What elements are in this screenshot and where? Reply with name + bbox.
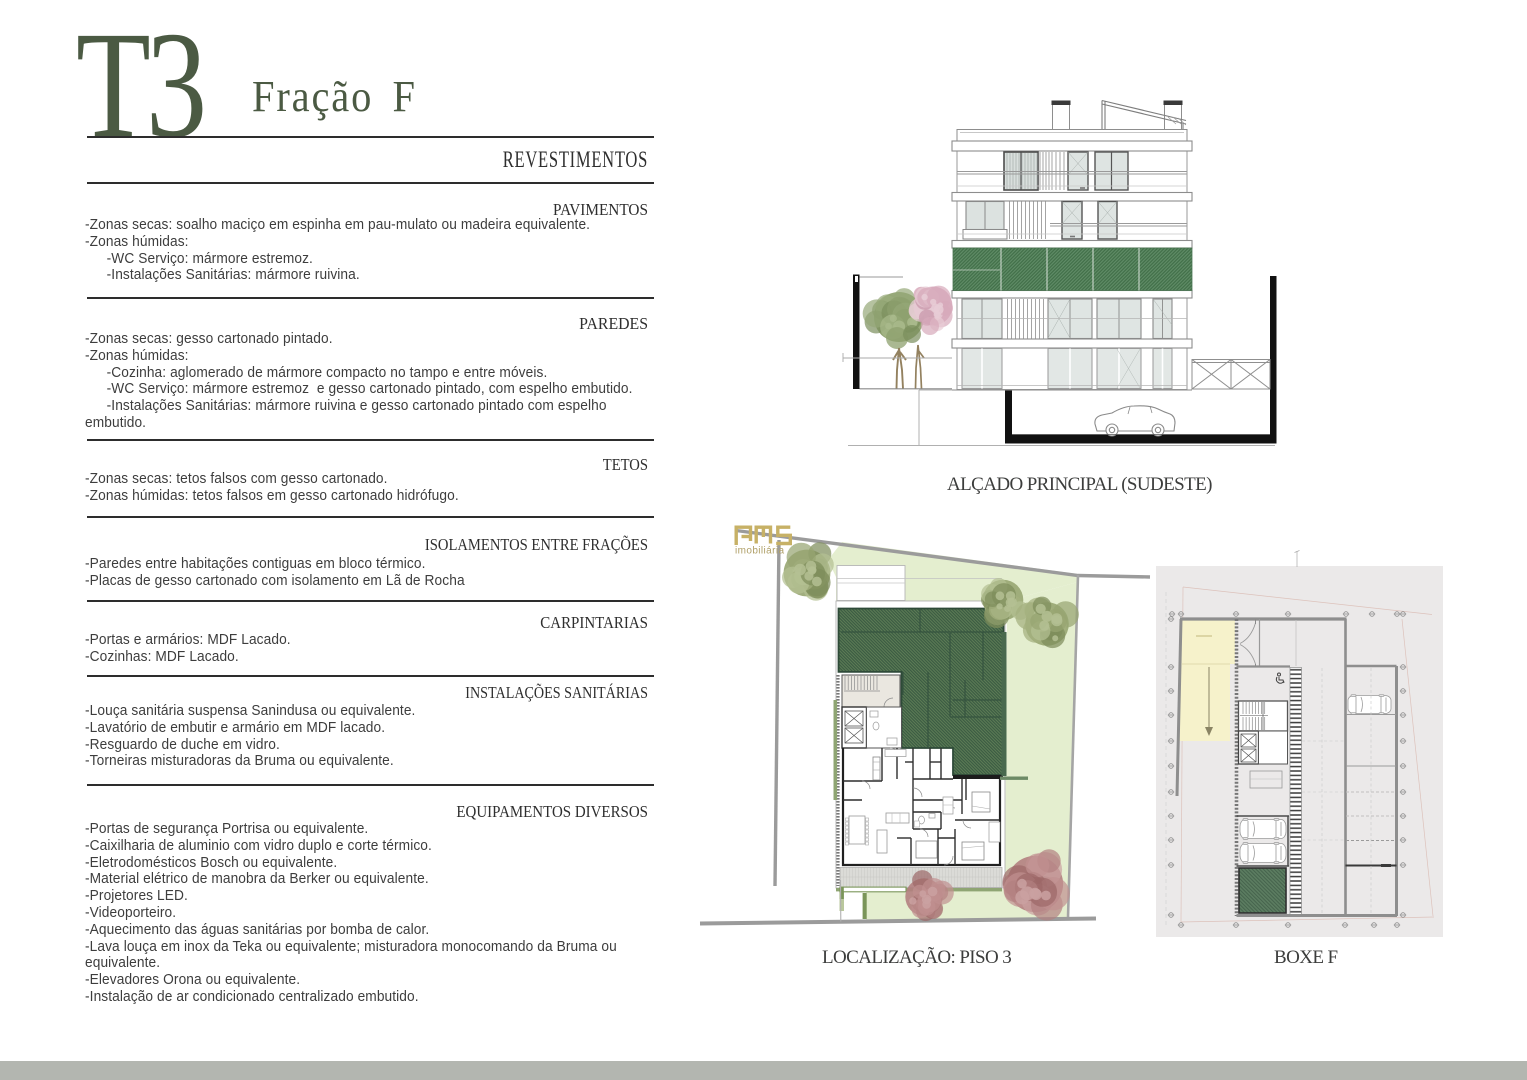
svg-text:imobiliária: imobiliária (735, 546, 784, 557)
